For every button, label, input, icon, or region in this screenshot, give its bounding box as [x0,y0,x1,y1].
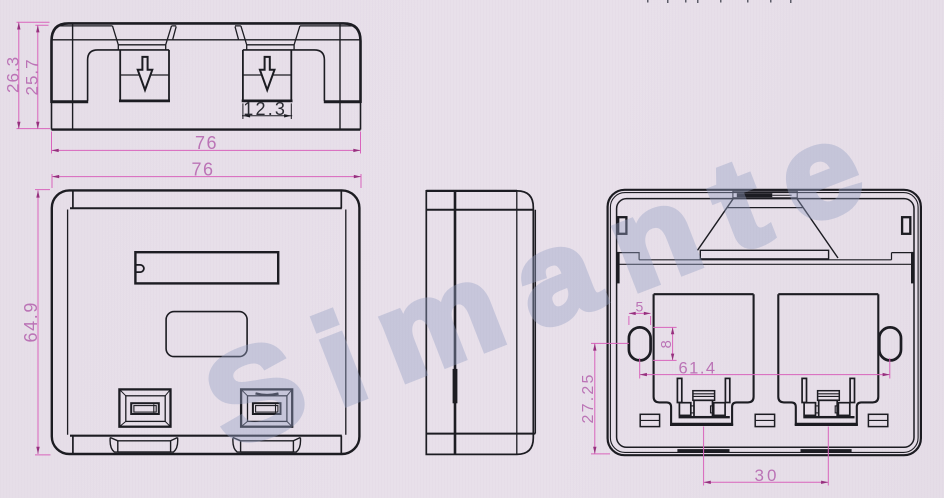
svg-text:64.9: 64.9 [21,301,41,342]
svg-text:26.3: 26.3 [4,56,23,93]
svg-text:76: 76 [192,160,215,180]
svg-text:27.25: 27.25 [580,372,597,423]
svg-text:30: 30 [755,466,780,485]
svg-text:61.4: 61.4 [679,360,717,378]
svg-text:8: 8 [658,340,675,348]
svg-text:76: 76 [195,133,218,153]
svg-text:25.7: 25.7 [23,58,42,95]
svg-text:Simante: Simante [187,82,905,475]
svg-text:12.3: 12.3 [243,99,287,119]
